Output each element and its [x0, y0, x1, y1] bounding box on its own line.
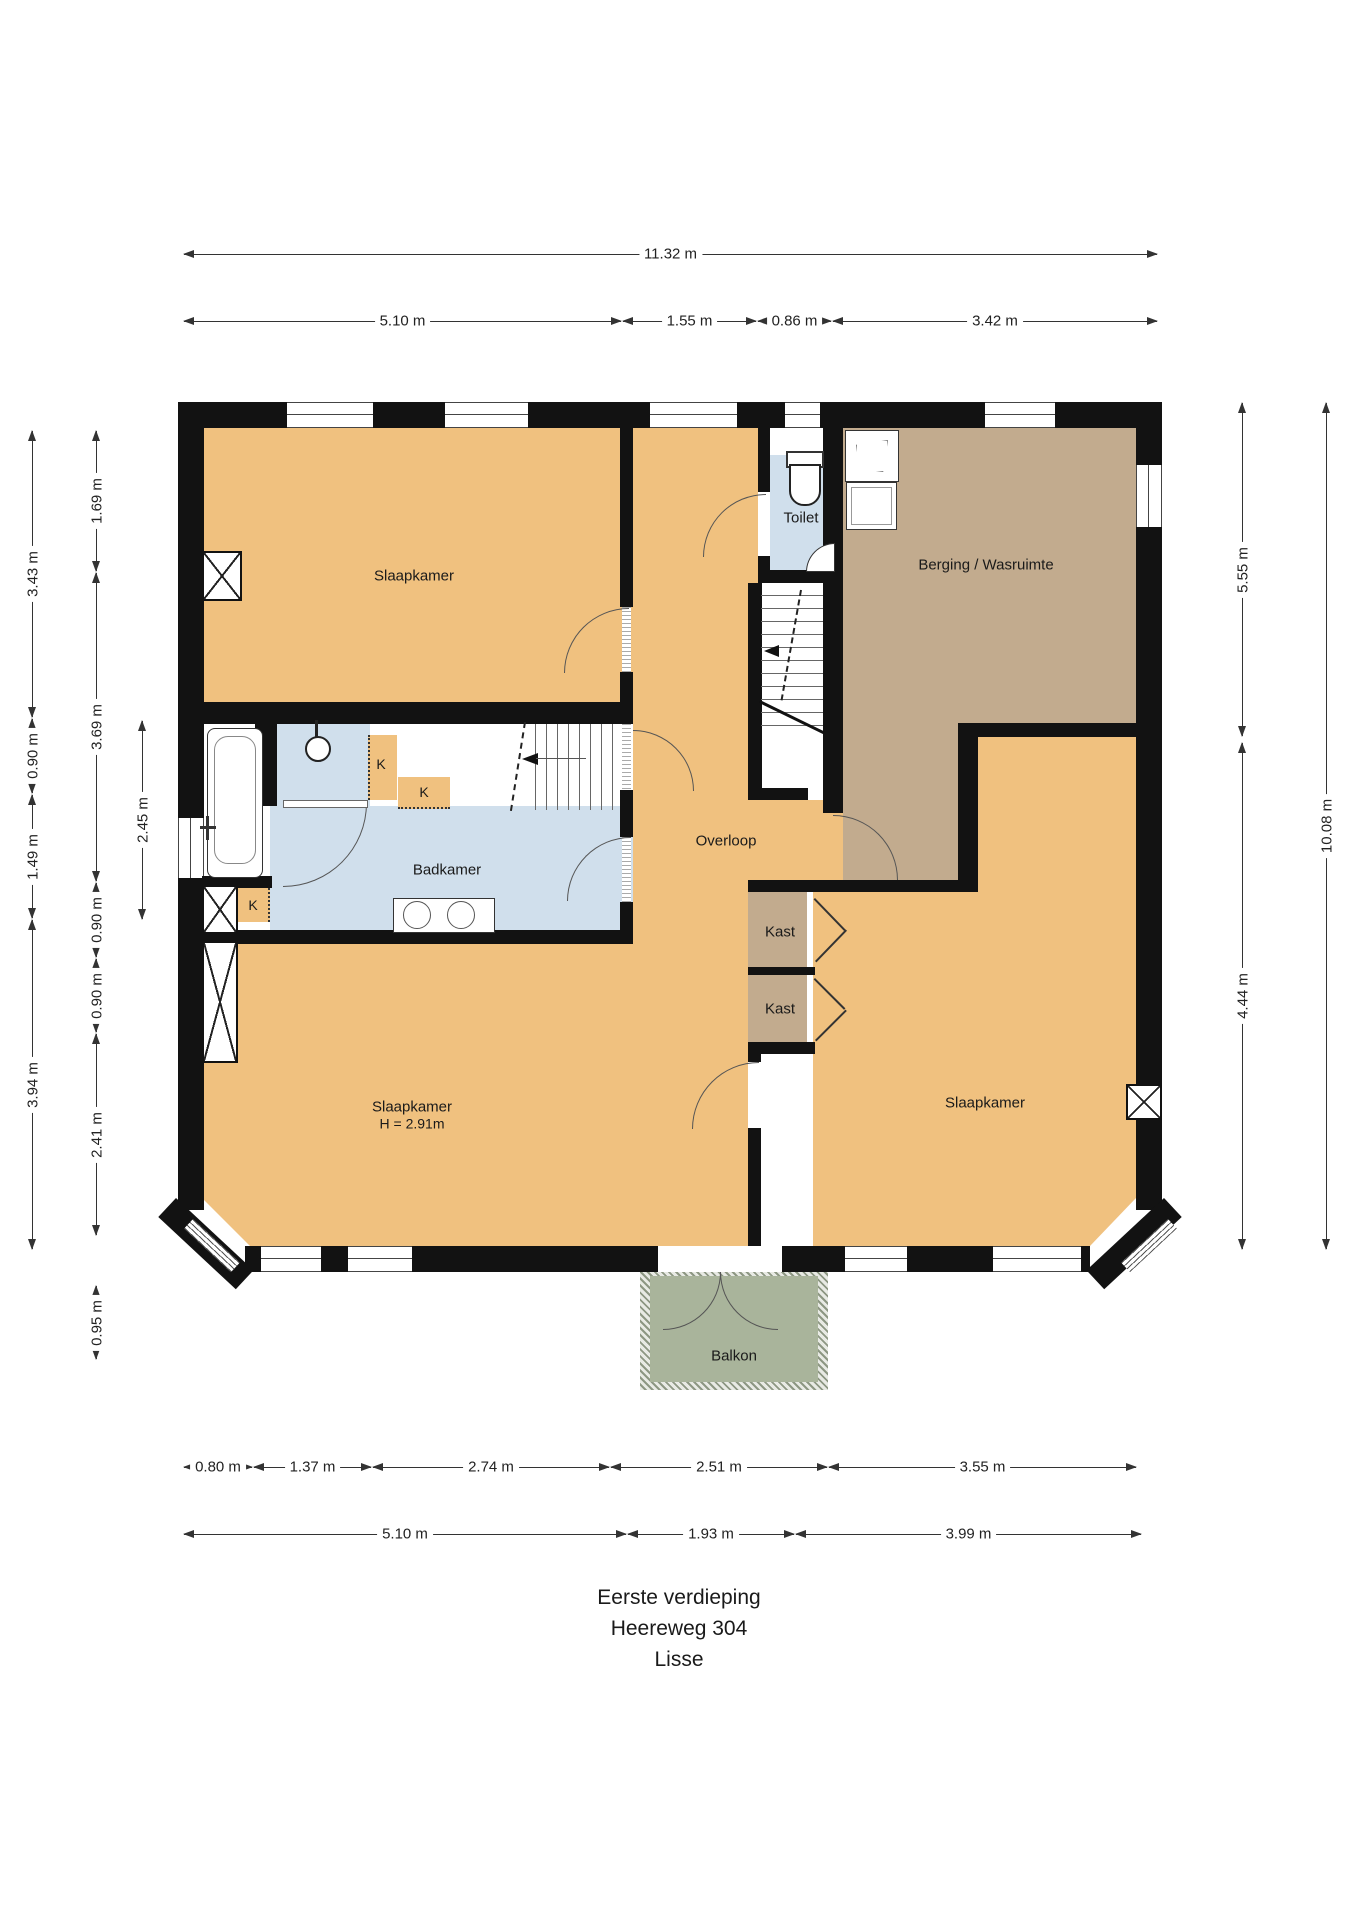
window-bottom-3: [845, 1246, 907, 1272]
stairs-central-arrow: [764, 645, 779, 657]
label-berging: Berging / Wasruimte: [918, 557, 1053, 574]
window-right-berging: [1136, 465, 1162, 527]
room-badkamer-shower-floor: [276, 722, 370, 806]
door-leaf-stairs: [622, 724, 631, 790]
label-badkamer: Badkamer: [413, 862, 481, 879]
dim-left-outer-3: 1.49 m: [26, 794, 39, 919]
dim-right-inner-2: 4.44 m: [1236, 742, 1249, 1250]
dim-top-seg3: 0.86 m: [757, 315, 832, 328]
window-top-3: [650, 402, 737, 428]
plan-title-line2: Heereweg 304: [597, 1613, 760, 1644]
dim-left-outer-2: 0.90 m: [26, 718, 39, 794]
wall-slaapkamertl-bottom: [178, 702, 633, 724]
wall-belowkast-b: [748, 1128, 761, 1246]
label-k3: K: [248, 897, 257, 913]
toilet-bowl: [789, 464, 821, 506]
door-leaf-shower: [283, 800, 368, 808]
shaft-xbox-top: [202, 551, 242, 601]
dim-left-outer-4: 3.94 m: [26, 919, 39, 1250]
dim-left-mid-5: 2.41 m: [90, 1033, 103, 1236]
dim-left-inner-1: 2.45 m: [136, 720, 149, 920]
wall-kast-top: [748, 880, 978, 892]
dim-bot2-seg1: 5.10 m: [183, 1528, 627, 1541]
stairs-left-arrow-line: [536, 758, 586, 759]
plan-title-line1: Eerste verdieping: [597, 1582, 760, 1613]
wall-kast-bottom: [748, 1042, 815, 1054]
wall-left: [178, 402, 204, 1210]
shower-head-icon: [305, 736, 331, 762]
dim-left-mid-2: 3.69 m: [90, 572, 103, 882]
label-slaapkamer-topleft: Slaapkamer: [374, 568, 454, 585]
dim-bot1-seg1: 0.80 m: [183, 1461, 253, 1474]
label-kast1: Kast: [765, 924, 795, 941]
room-overloop-floor-main: [633, 583, 748, 1246]
stairs-left-arrow: [522, 753, 538, 765]
dim-left-mid-6: 0.95 m: [90, 1285, 103, 1360]
plan-title: Eerste verdieping Heereweg 304 Lisse: [597, 1582, 760, 1675]
label-balkon: Balkon: [711, 1348, 757, 1365]
dim-left-outer-1: 3.43 m: [26, 430, 39, 718]
dim-bot1-seg3: 2.74 m: [372, 1461, 610, 1474]
dim-top-total: 11.32 m: [183, 248, 1158, 261]
window-top-2: [445, 402, 528, 428]
washbasin-left: [403, 901, 431, 929]
window-top-4: [785, 402, 820, 428]
window-top-1: [287, 402, 373, 428]
shower-stem-icon: [315, 720, 318, 738]
wall-overloop-left-b: [620, 672, 633, 724]
dim-left-mid-3: 0.90 m: [90, 882, 103, 958]
label-slaapkamer-bottomleft-height: H = 2.91m: [372, 1116, 452, 1132]
floorplan-page: Slaapkamer Toilet Berging / Wasruimte Ov…: [0, 0, 1358, 1920]
dim-bot1-seg5: 3.55 m: [828, 1461, 1137, 1474]
dim-top-seg1: 5.10 m: [183, 315, 622, 328]
wall-overloop-left-a: [620, 428, 633, 607]
stairs-left-walkline: [510, 722, 526, 811]
dim-bot2-seg3: 3.99 m: [795, 1528, 1142, 1541]
bathtub-faucet-v: [206, 816, 209, 840]
window-top-5: [985, 402, 1055, 428]
room-overloop-floor-right: [748, 800, 823, 880]
wall-stairwell-left: [748, 583, 762, 788]
shaft-xbox-mid: [202, 885, 238, 934]
dim-left-mid-1: 1.69 m: [90, 430, 103, 572]
label-slaapkamer-bottomright: Slaapkamer: [945, 1095, 1025, 1112]
dim-bot1-seg2: 1.37 m: [253, 1461, 372, 1474]
wall-kast-divider: [748, 967, 815, 975]
dim-top-seg2: 1.55 m: [622, 315, 757, 328]
wall-toilet-left-a: [758, 428, 770, 492]
window-bottom-4: [993, 1246, 1081, 1272]
shaft-xbox-tall: [202, 941, 238, 1063]
laundry-sink-basin: [856, 440, 888, 472]
wall-berging-ext-right: [958, 737, 978, 880]
window-bottom-2: [348, 1246, 412, 1272]
dim-bot2-seg2: 1.93 m: [627, 1528, 795, 1541]
dim-right-inner-1: 5.55 m: [1236, 402, 1249, 737]
room-slaapkamer-bottomleft-floor: [202, 944, 633, 1246]
dim-top-seg4: 3.42 m: [832, 315, 1158, 328]
washbasin-right: [447, 901, 475, 929]
dim-right-outer-1: 10.08 m: [1320, 402, 1333, 1250]
label-overloop: Overloop: [696, 833, 757, 850]
label-slaapkamer-bottomleft-name: Slaapkamer: [372, 1099, 452, 1116]
wall-stairwell-bottom: [748, 788, 808, 800]
label-toilet: Toilet: [783, 510, 818, 527]
wall-belowkast-a: [748, 1054, 761, 1062]
label-kast2: Kast: [765, 1001, 795, 1018]
window-bottom-1: [261, 1246, 321, 1272]
plan-title-line3: Lisse: [597, 1644, 760, 1675]
balkon-door-opening: [658, 1246, 782, 1272]
label-slaapkamer-bottomleft: Slaapkamer H = 2.91m: [372, 1099, 452, 1132]
shaft-xbox-right: [1126, 1084, 1162, 1120]
stairs-left-treads: [535, 724, 623, 810]
label-k2: K: [419, 784, 428, 800]
dim-bot1-seg4: 2.51 m: [610, 1461, 828, 1474]
bathtub-inner: [214, 736, 256, 864]
wall-berging-bottom-right: [958, 723, 1162, 737]
washing-machine-inner: [851, 487, 892, 525]
wall-berging-left: [823, 428, 843, 813]
label-k1: K: [376, 756, 385, 772]
dim-left-mid-4: 0.90 m: [90, 958, 103, 1033]
